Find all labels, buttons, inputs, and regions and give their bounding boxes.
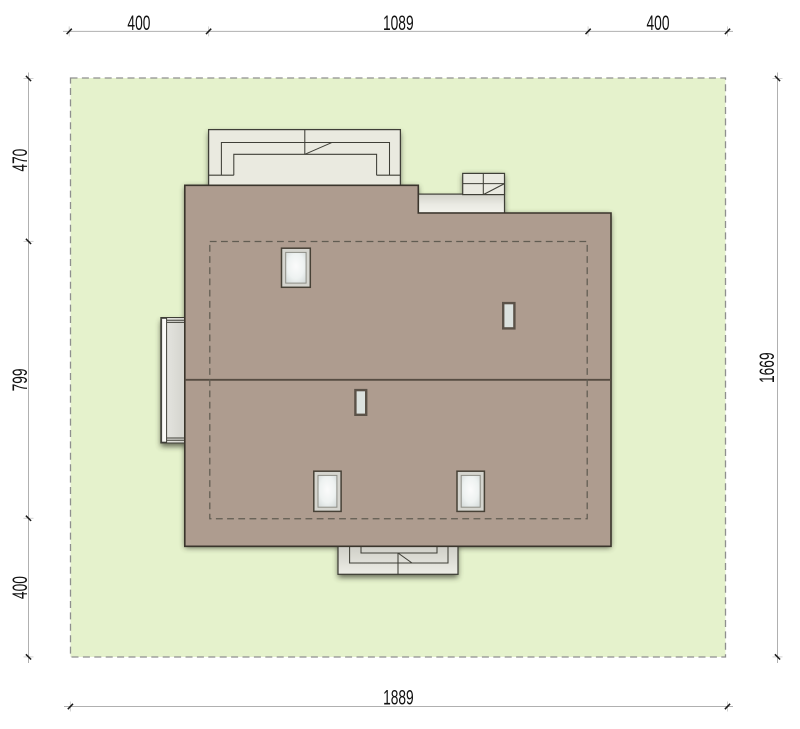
svg-text:470: 470 xyxy=(8,149,32,172)
svg-text:1669: 1669 xyxy=(755,352,779,383)
svg-text:400: 400 xyxy=(127,11,150,35)
svg-text:1089: 1089 xyxy=(383,11,414,35)
svg-text:1889: 1889 xyxy=(383,685,414,709)
svg-text:400: 400 xyxy=(8,576,32,599)
svg-text:799: 799 xyxy=(8,368,32,391)
svg-text:400: 400 xyxy=(647,11,670,35)
